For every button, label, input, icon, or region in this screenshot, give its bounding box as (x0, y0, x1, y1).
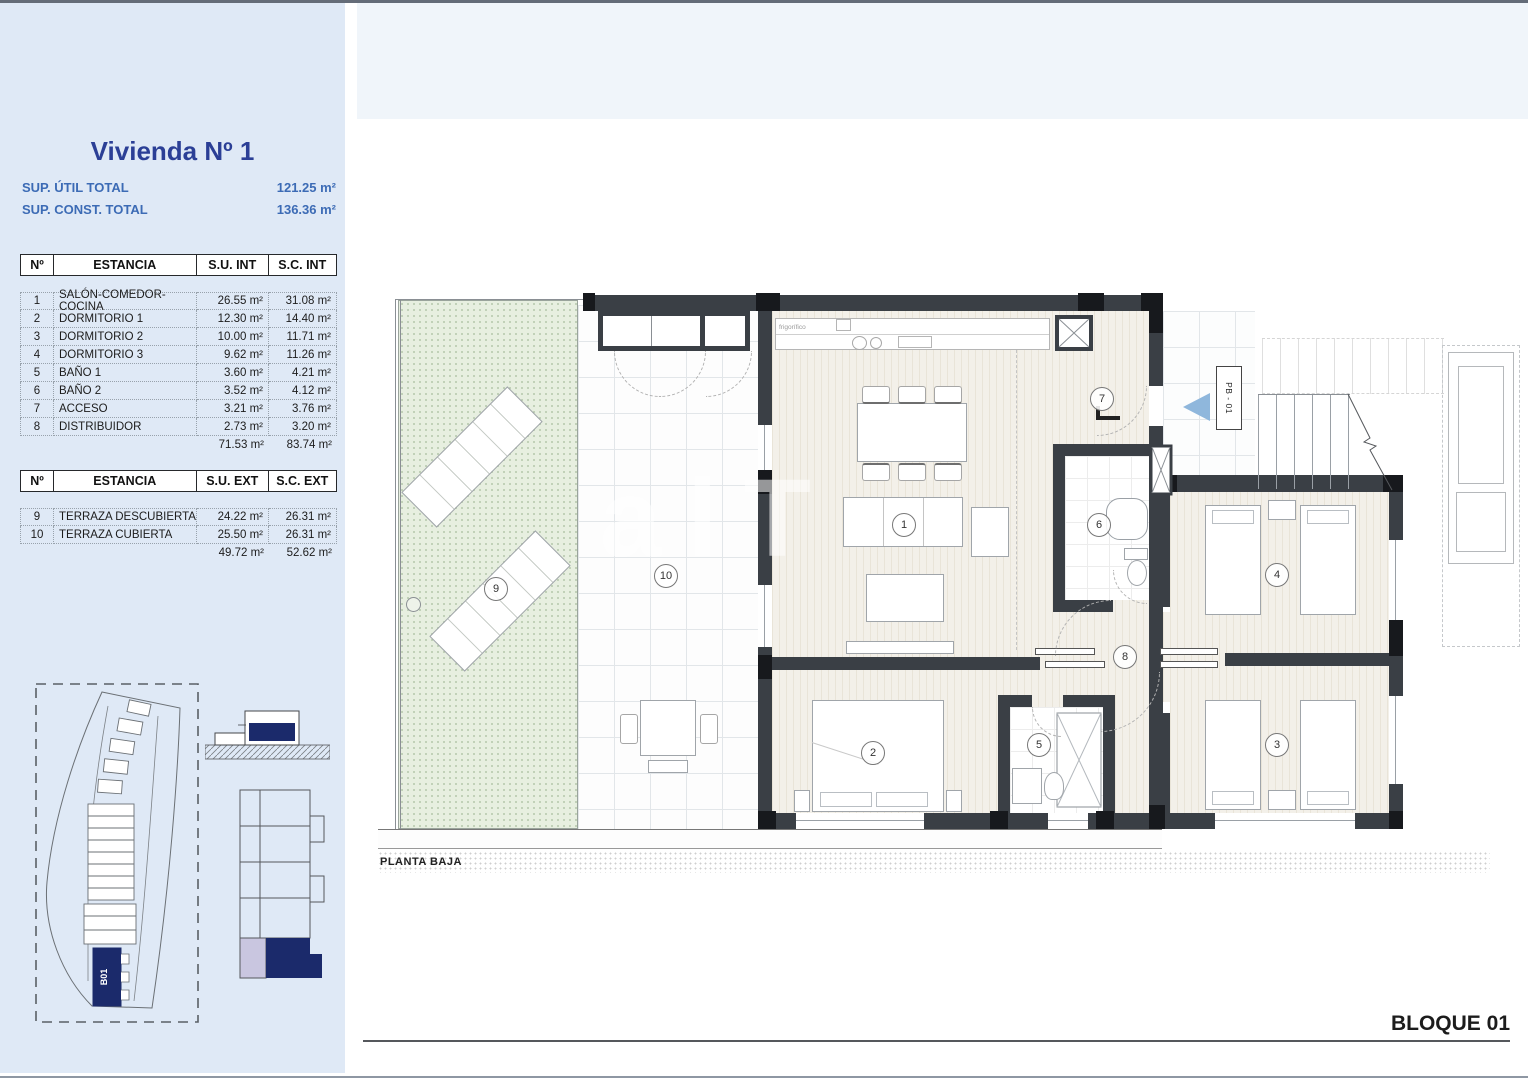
wall-segment (583, 295, 1163, 311)
kitchen-counter-line (776, 334, 1049, 335)
dining-chair (934, 463, 962, 481)
kitchen-sink (870, 337, 882, 349)
floor-title: PLANTA BAJA (380, 856, 462, 868)
wall-segment (998, 695, 1010, 813)
window (1048, 813, 1088, 829)
column (1389, 811, 1403, 829)
cell: 10 (20, 526, 54, 544)
shaft-xbox (1149, 444, 1173, 496)
cell: 4 (20, 346, 54, 364)
stack-lavender-unit (240, 938, 266, 978)
col-header: ESTANCIA (53, 470, 198, 492)
terrace-storage-closet (598, 311, 750, 351)
page-title: Vivienda Nº 1 (0, 136, 345, 167)
cell: 8 (20, 418, 54, 436)
top-band (357, 3, 1528, 119)
cell: 3.20 m² (269, 418, 337, 436)
window (1215, 813, 1355, 829)
col-header: S.C. INT (268, 254, 338, 276)
cell: 14.40 m² (269, 310, 337, 328)
sup-util-label: SUP. ÚTIL TOTAL (22, 180, 129, 195)
storage-divider (651, 316, 652, 346)
column (1078, 293, 1104, 311)
window (1389, 696, 1403, 784)
wall-segment (1053, 444, 1149, 456)
stack-highlight-unit (266, 938, 322, 978)
cell: DORMITORIO 2 (54, 328, 197, 346)
cell: 12.30 m² (197, 310, 269, 328)
interior-table-total: 71.53 m² 83.74 m² (20, 436, 337, 454)
entry-arrow-icon (1183, 393, 1210, 421)
terrace-manhole (406, 597, 421, 612)
wall-segment (1053, 444, 1065, 612)
column (1389, 620, 1403, 656)
pavement-strip (378, 829, 1162, 849)
sink (1012, 768, 1042, 804)
cell: 1 (20, 292, 54, 310)
nightstand (794, 790, 810, 812)
cell: 6 (20, 382, 54, 400)
cell: 31.08 m² (269, 292, 337, 310)
room-label-10: 10 (654, 564, 678, 588)
dining-chair (862, 463, 890, 481)
cell: 3.60 m² (197, 364, 269, 382)
block-title: BLOQUE 01 (1160, 1012, 1510, 1036)
column (583, 293, 595, 311)
dining-table (857, 403, 967, 462)
cell: 7 (20, 400, 54, 418)
sofa-divider (923, 498, 924, 546)
terrace-edge-line (400, 300, 401, 829)
interior-table-rows: 1SALÓN-COMEDOR-COCINA26.55 m²31.08 m² 2D… (20, 292, 337, 436)
cell: 11.26 m² (269, 346, 337, 364)
column (1096, 811, 1114, 829)
cell: 2.73 m² (197, 418, 269, 436)
stairs-cut-line (1340, 390, 1410, 492)
nightstand (946, 790, 962, 812)
exterior-table-rows: 9TERRAZA DESCUBIERTA24.22 m²26.31 m² 10T… (20, 508, 337, 544)
cell: 10.00 m² (197, 328, 269, 346)
wall-segment (1157, 713, 1170, 813)
sup-const-value: 136.36 m² (196, 202, 336, 217)
cell: 3.52 m² (197, 382, 269, 400)
entry-tag: PB - 01 (1216, 366, 1242, 430)
stairs-upper-flight (1262, 338, 1444, 394)
bathtub (1106, 498, 1148, 540)
cell: 3.21 m² (197, 400, 269, 418)
total-sc-ext: 52.62 m² (269, 544, 337, 562)
window (758, 585, 772, 647)
entry-tag-text: PB - 01 (1224, 382, 1234, 414)
page: { "sidebar": { "title": "Vivienda Nº 1",… (0, 0, 1528, 1080)
dining-chair (862, 386, 890, 404)
window (1389, 540, 1403, 628)
pillow (1212, 791, 1254, 805)
toilet-bowl (1044, 772, 1064, 800)
pillow (1307, 510, 1349, 524)
col-header: Nº (20, 254, 54, 276)
cell: 26.55 m² (197, 292, 269, 310)
terrace-chair (700, 714, 718, 744)
pillow (876, 792, 928, 807)
neighbour-wardrobe-inner (1458, 366, 1504, 484)
cell: DISTRIBUIDOR (54, 418, 197, 436)
armchair (971, 507, 1009, 557)
site-block-label: B01 (99, 969, 109, 986)
column (1149, 311, 1163, 333)
column (756, 293, 780, 311)
room-label-6: 6 (1087, 513, 1111, 537)
dashed-boundary (1016, 350, 1017, 650)
terrace-bench (648, 760, 688, 773)
wall-segment (1157, 492, 1170, 607)
column (1149, 805, 1165, 829)
coffee-table (866, 574, 944, 622)
room-label-3: 3 (1265, 733, 1289, 757)
dining-chair (934, 386, 962, 404)
total-sc-int: 83.74 m² (269, 436, 337, 454)
kitchen-hob (898, 336, 932, 348)
room-label-4: 4 (1265, 563, 1289, 587)
cell: 4.21 m² (269, 364, 337, 382)
nightstand (1268, 790, 1296, 810)
pillow (1212, 510, 1254, 524)
room-label-1: 1 (892, 513, 916, 537)
total-su-int: 71.53 m² (197, 436, 269, 454)
cell: TERRAZA DESCUBIERTA (54, 508, 197, 526)
column (990, 811, 1008, 829)
cell: 25.50 m² (197, 526, 269, 544)
section-diagram (205, 695, 330, 773)
exterior-table-header: Nº ESTANCIA S.U. EXT S.C. EXT (20, 470, 337, 492)
sliding-door (1160, 648, 1218, 655)
cell: 4.12 m² (269, 382, 337, 400)
bottom-border-line (0, 1076, 1528, 1078)
cell: BAÑO 1 (54, 364, 197, 382)
site-plan-map: B01 (30, 676, 210, 1032)
toilet (1124, 548, 1148, 560)
sliding-door (1045, 661, 1105, 668)
cell: 26.31 m² (269, 508, 337, 526)
pillow (820, 792, 872, 807)
window (796, 813, 924, 829)
cell: 9.62 m² (197, 346, 269, 364)
neighbour-wardrobe-inner (1456, 492, 1506, 552)
room-label-5: 5 (1027, 733, 1051, 757)
col-header: Nº (20, 470, 54, 492)
cell: 3 (20, 328, 54, 346)
cell: 2 (20, 310, 54, 328)
room-label-7: 7 (1090, 387, 1114, 411)
sup-util-value: 121.25 m² (196, 180, 336, 195)
tv-unit (846, 641, 954, 654)
pillow (1307, 791, 1349, 805)
block-title-rule (363, 1040, 1510, 1042)
watermark: alT (600, 455, 837, 582)
cell: 11.71 m² (269, 328, 337, 346)
column (758, 655, 772, 679)
kitchen-sink (852, 336, 867, 350)
total-su-ext: 49.72 m² (197, 544, 269, 562)
terrace-edge-line (395, 300, 396, 829)
wall-segment (772, 657, 1040, 670)
cell: 5 (20, 364, 54, 382)
wall-segment (1225, 653, 1389, 666)
interior-table-header: Nº ESTANCIA S.U. INT S.C. INT (20, 254, 337, 276)
storage-divider (700, 316, 705, 346)
cell: 24.22 m² (197, 508, 269, 526)
cell: 9 (20, 508, 54, 526)
block-stack-diagram (232, 788, 332, 984)
col-header: S.C. EXT (268, 470, 338, 492)
col-header: ESTANCIA (53, 254, 198, 276)
exterior-table-total: 49.72 m² 52.62 m² (20, 544, 337, 562)
shaft-xbox (1055, 315, 1093, 351)
cell: 26.31 m² (269, 526, 337, 544)
col-header: S.U. EXT (196, 470, 270, 492)
col-header: S.U. INT (196, 254, 270, 276)
fridge-label: frigorífico (779, 324, 806, 331)
dining-chair (898, 386, 926, 404)
column (758, 811, 776, 829)
sliding-door (1160, 661, 1218, 668)
terrace-chair (620, 714, 638, 744)
cell: ACCESO (54, 400, 197, 418)
cell: BAÑO 2 (54, 382, 197, 400)
cell: TERRAZA CUBIERTA (54, 526, 197, 544)
cell: DORMITORIO 1 (54, 310, 197, 328)
cell: DORMITORIO 3 (54, 346, 197, 364)
cell: SALÓN-COMEDOR-COCINA (54, 292, 197, 310)
section-highlight-unit (249, 723, 295, 741)
nightstand (1268, 500, 1296, 520)
ground-texture (378, 851, 1490, 873)
sofa-divider (883, 498, 884, 546)
cell: 3.76 m² (269, 400, 337, 418)
room-label-9: 9 (484, 577, 508, 601)
entry-door-opening (1149, 386, 1163, 426)
sup-const-label: SUP. CONST. TOTAL (22, 202, 148, 217)
dining-chair (898, 463, 926, 481)
terrace-table (640, 700, 696, 756)
room-label-2: 2 (861, 741, 885, 765)
room-label-8: 8 (1113, 645, 1137, 669)
column (1141, 293, 1163, 311)
kitchen-appliance (836, 319, 851, 331)
stairs-lower-flight (1258, 394, 1350, 489)
